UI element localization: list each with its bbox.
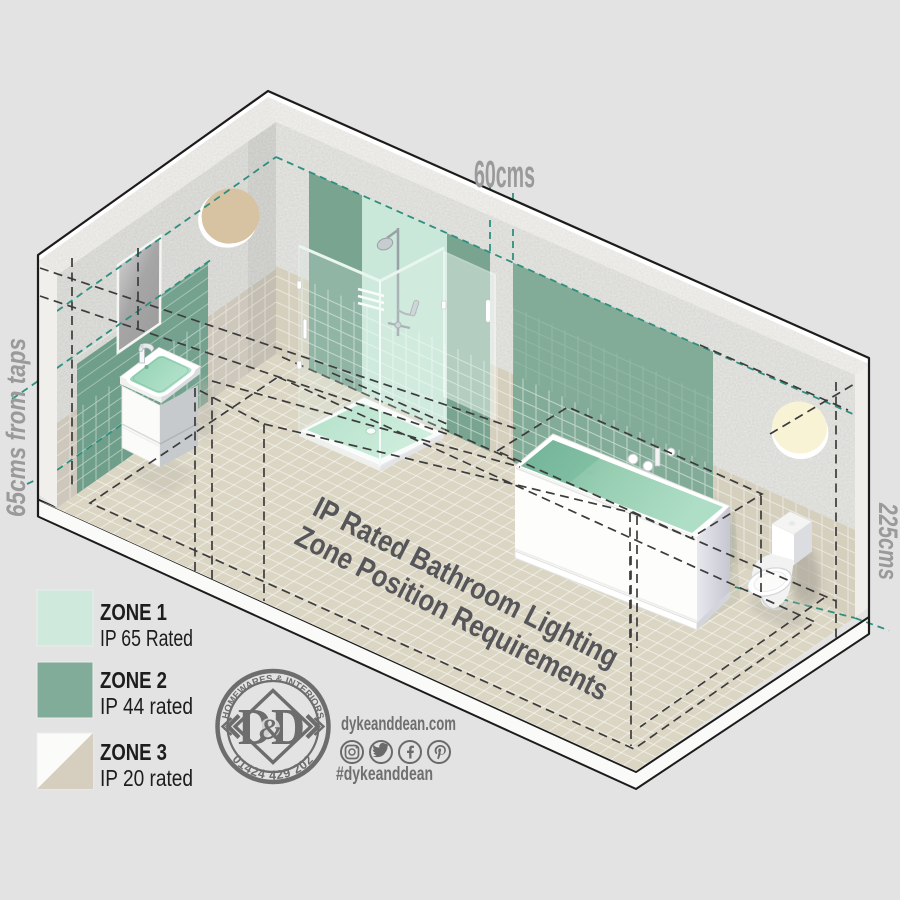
svg-text:&: & bbox=[259, 713, 282, 746]
svg-text:65cms from taps: 65cms from taps bbox=[1, 338, 31, 517]
svg-text:60cms: 60cms bbox=[474, 154, 535, 196]
svg-text:IP 44 rated: IP 44 rated bbox=[100, 693, 193, 719]
svg-text:ZONE 2: ZONE 2 bbox=[100, 667, 167, 693]
svg-text:dykeanddean.com: dykeanddean.com bbox=[341, 714, 456, 735]
svg-text:#dykeanddean: #dykeanddean bbox=[336, 764, 433, 785]
svg-text:225cms: 225cms bbox=[873, 502, 900, 580]
svg-text:ZONE 1: ZONE 1 bbox=[100, 599, 167, 625]
svg-text:ZONE 3: ZONE 3 bbox=[100, 739, 167, 765]
svg-text:IP 65 Rated: IP 65 Rated bbox=[100, 625, 193, 651]
svg-text:IP 20 rated: IP 20 rated bbox=[100, 765, 193, 791]
